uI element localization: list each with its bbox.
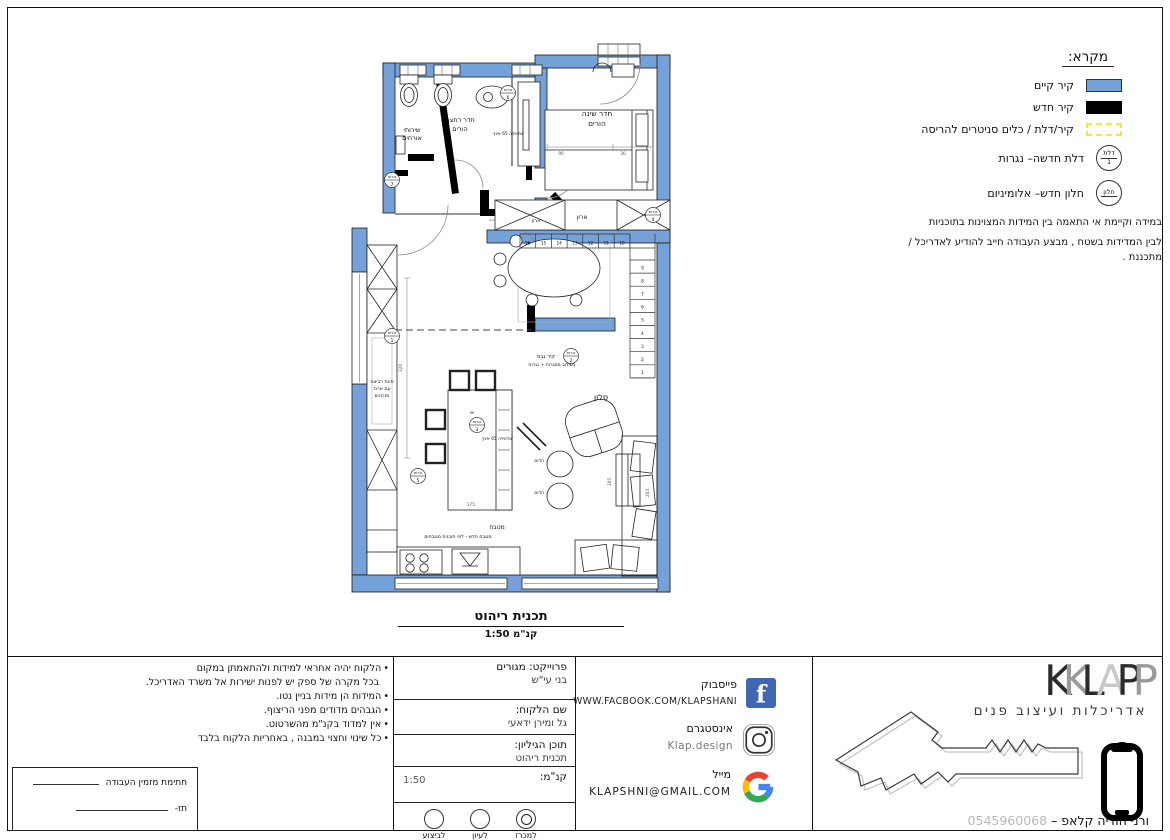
stair-number: 7 [641, 292, 644, 297]
contact-line: ורני הודיה קלאפ – 0545960068 [968, 813, 1149, 828]
sheet-content-label: תוכן הגיליון: [401, 739, 567, 751]
note-line: הלקוח יהיה אחראי למידות ולהתאמתן במקום [15, 662, 389, 676]
phone-number[interactable]: 0545960068 [968, 813, 1048, 828]
window-symbol-icon: חלון [1096, 180, 1122, 206]
plan-label: חדר שינה [582, 109, 613, 118]
plan-label: פינת רביצה [370, 380, 393, 385]
door-symbol-icon: דלת 1 [1096, 145, 1122, 171]
dimension-text: 175 [467, 502, 475, 507]
carpentry-word: נגרות [567, 351, 576, 355]
carpentry-number: 5 [417, 478, 420, 484]
existing-wall-swatch [1086, 79, 1122, 92]
plan-scale: קנ"מ 1:50 [398, 629, 624, 640]
legend: מקרא: קיר קיים קיר חדש קיר/דלת / כלים סנ… [878, 46, 1162, 266]
plan-label: חדר רחצה [445, 116, 475, 124]
logo-letter: K [1044, 656, 1063, 705]
instagram-label: אינסטגרם [668, 722, 733, 735]
stair-number: 11 [604, 241, 610, 246]
dimension-text: 203 [645, 489, 650, 497]
carpentry-word: נגרות [504, 88, 513, 92]
plan-title: תכנית ריהוט [398, 609, 624, 627]
carpentry-number: 1 [391, 338, 394, 344]
stair-number: 12 [588, 241, 594, 246]
drawing-sheet-page: { "legend": { "title": "מקרא:", "rows": … [0, 0, 1170, 838]
instagram-icon[interactable] [742, 722, 776, 758]
plan-label: טלוויזיה 65 אינץ' [493, 131, 524, 137]
status-option[interactable]: למכרז [509, 809, 543, 840]
id-blank[interactable] [76, 802, 168, 811]
mail-label: מייל [589, 768, 731, 781]
dimension-text: 105 [607, 478, 612, 486]
legend-label: קיר/דלת / כלים סניטרים להריסה [921, 123, 1074, 136]
new-wall-swatch [1086, 101, 1122, 114]
scale-value: 1:50 [403, 775, 425, 786]
note-line: הגבהים מדודים מפני הריצוף. [15, 704, 389, 718]
carpentry-word: נגרות [388, 175, 397, 179]
plan-label: סלון [594, 393, 608, 402]
stair-number: 2 [641, 357, 644, 362]
owner-name: ורני הודיה קלאפ [1061, 813, 1149, 828]
plan-label: מזרונים [374, 394, 389, 399]
floor-plan: 16151413121110987654321 שירותיאורחיםחדר … [350, 38, 675, 612]
plan-label: אי [470, 410, 474, 416]
logo-letter: K [1063, 656, 1082, 705]
instagram-row: אינסטגרם Klap.design [668, 722, 776, 758]
stair-number: 3 [641, 344, 644, 349]
carpentry-word: נגרות [473, 420, 482, 424]
general-notes: הלקוח יהיה אחראי למידות ולהתאמתן במקום ב… [15, 662, 389, 745]
carpentry-ref: נגרות2 [564, 349, 579, 365]
dash: – [1051, 813, 1057, 828]
carpentry-ref: נגרות5 [411, 469, 426, 485]
note-line: בכל מקרה של ספק יש לפנות ישירות אל משרד … [15, 676, 389, 690]
carpentry-ref: נגרות3 [470, 418, 485, 434]
stair-number: 4 [641, 331, 644, 336]
stair-number: 9 [641, 265, 644, 270]
plan-label: ארון [577, 214, 588, 221]
signature-box: חתימת מזמין העבודה תז- [12, 767, 198, 831]
mail-row: מייל KLAPSHNI@GMAIL.COM [589, 768, 776, 806]
note-line: אין למדוד בקנ"מ מהשרטוט. [15, 718, 389, 732]
plan-label: שירותי [403, 126, 421, 134]
instagram-handle[interactable]: Klap.design [668, 740, 733, 752]
logo-letter: P [1133, 656, 1149, 705]
stair-number: 1 [641, 370, 644, 375]
carpentry-ref: נגרות4 [646, 208, 661, 224]
plan-label: טלוויזיה 65 אינץ' [482, 436, 513, 442]
sheet-content-value: תכנית ריהוט [401, 753, 567, 764]
client-value: גל ומירן ידאעי [401, 718, 567, 729]
sheet-content-row: תוכן הגיליון: תכנית ריהוט [393, 735, 575, 767]
client-row: שם הלקוח: גל ומירן ידאעי [393, 700, 575, 735]
dimension-text: 90 [558, 151, 564, 156]
plan-label: הדום [534, 459, 544, 464]
carpentry-number: 2 [570, 358, 573, 364]
status-circle[interactable] [424, 809, 444, 829]
legend-label: חלון חדש– אלומיניום [987, 187, 1084, 200]
project-value: בני עי"ש [401, 675, 567, 686]
project-label: פרוייקט: מגורים [401, 661, 567, 673]
legend-row-new-window: חלון חלון חדש– אלומיניום [878, 180, 1162, 206]
google-icon[interactable] [740, 768, 776, 806]
carpentry-number: 4 [652, 217, 655, 223]
note-line: המידות הן מידות בניין נטו. [15, 690, 389, 704]
legend-label: קיר חדש [1033, 101, 1074, 114]
brand-column: KKLAPP אדריכלות ועיצוב פנים ורני הודיה ק… [812, 656, 1163, 831]
status-label: לעיון [472, 831, 488, 840]
stair-number: 10 [619, 241, 625, 246]
project-row: פרוייקט: מגורים בני עי"ש [393, 657, 575, 700]
legend-note-line1: במידה וקיימת אי התאמה בין המידות המצוינו… [878, 215, 1162, 231]
logo-letter: L [1081, 656, 1096, 705]
plan-label: הורים [452, 125, 467, 133]
facebook-label: פייסבוק [573, 678, 737, 691]
signature-label: חתימת מזמין העבודה [106, 778, 187, 788]
stair-number: 13 [572, 241, 578, 246]
status-option[interactable]: לביצוע [417, 809, 451, 840]
plan-label: מטבח [489, 524, 504, 531]
facebook-row: f פייסבוק WWW.FACBOOK.COM/KLAPSHANI [573, 678, 776, 708]
demolition-swatch [1086, 123, 1122, 136]
legend-title: מקרא: [1062, 49, 1114, 67]
logo-letter: A [1097, 656, 1117, 705]
status-circle[interactable] [470, 809, 490, 829]
stair-number: 6 [641, 305, 644, 310]
scale-label: קנ"מ: [401, 771, 567, 783]
id-label: תז- [175, 804, 187, 814]
carpentry-word: נגרות [649, 210, 658, 214]
plan-label: קיר גבס [537, 354, 555, 360]
legend-row-demolition: קיר/דלת / כלים סניטרים להריסה [878, 123, 1162, 136]
status-circle-selected[interactable] [516, 809, 536, 829]
stair-number: 5 [641, 318, 644, 323]
plan-caption: תכנית ריהוט קנ"מ 1:50 [398, 609, 624, 640]
facebook-url[interactable]: WWW.FACBOOK.COM/KLAPSHANI [573, 696, 737, 707]
carpentry-number: 3 [476, 427, 479, 433]
plan-label: עם ארגז [373, 387, 390, 392]
logo-letter: P [1116, 656, 1132, 705]
dimension-text: 320 [398, 364, 403, 372]
carpentry-ref: נגרות1 [385, 329, 400, 345]
plan-label: הורים [588, 119, 606, 128]
carpentry-ref: נגרות7 [385, 173, 400, 189]
stair-number: 15 [541, 241, 547, 246]
stair-number: 8 [641, 278, 644, 283]
note-line: כל שינוי וחצוי במבנה , באחריות הלקוח בלב… [15, 732, 389, 746]
carpentry-number: 6 [507, 95, 510, 101]
signature-blank[interactable] [33, 776, 99, 785]
dimension-text: 30 [620, 151, 626, 156]
info-column: פרוייקט: מגורים בני עי"ש שם הלקוח: גל ומ… [393, 657, 575, 831]
carpentry-word: נגרות [414, 471, 423, 475]
carpentry-ref: נגרות6 [501, 86, 516, 102]
social-column: f פייסבוק WWW.FACBOOK.COM/KLAPSHANI אינס… [575, 656, 812, 831]
scale-row: קנ"מ: 1:50 [393, 767, 575, 803]
legend-row-new-wall: קיר חדש [878, 101, 1162, 114]
plan-label: הדום [534, 491, 544, 496]
legend-row-existing-wall: קיר קיים [878, 79, 1162, 92]
status-label: לביצוע [423, 831, 446, 840]
status-label: למכרז [515, 831, 537, 840]
legend-note-line2: לבין המדידות בשטח , מבצע העבודה חייב להו… [878, 235, 1162, 266]
carpentry-number: 7 [391, 182, 394, 188]
smartphone-icon [1099, 742, 1145, 822]
facebook-icon[interactable]: f [746, 678, 776, 708]
key-logo-icon [826, 702, 1091, 824]
legend-label: קיר קיים [1034, 79, 1074, 92]
klap-logo: KKLAPP [1044, 656, 1149, 705]
plan-label: ארון [532, 219, 541, 224]
status-option[interactable]: לעיון [463, 809, 497, 840]
legend-label: דלת חדשה– נגרות [998, 152, 1084, 165]
stair-number: 14 [557, 241, 563, 246]
client-label: שם הלקוח: [401, 704, 567, 716]
carpentry-word: נגרות [388, 331, 397, 335]
plan-label: אורחים [402, 134, 422, 142]
status-row: לביצועלעיוןלמכרז [393, 803, 575, 840]
mail-address[interactable]: KLAPSHNI@GMAIL.COM [589, 786, 731, 798]
plan-label: מטבח חדש - לפי תוכנית מטבחים [424, 534, 491, 540]
stair-number: 16 [525, 241, 531, 246]
legend-row-new-door: דלת 1 דלת חדשה– נגרות [878, 145, 1162, 171]
